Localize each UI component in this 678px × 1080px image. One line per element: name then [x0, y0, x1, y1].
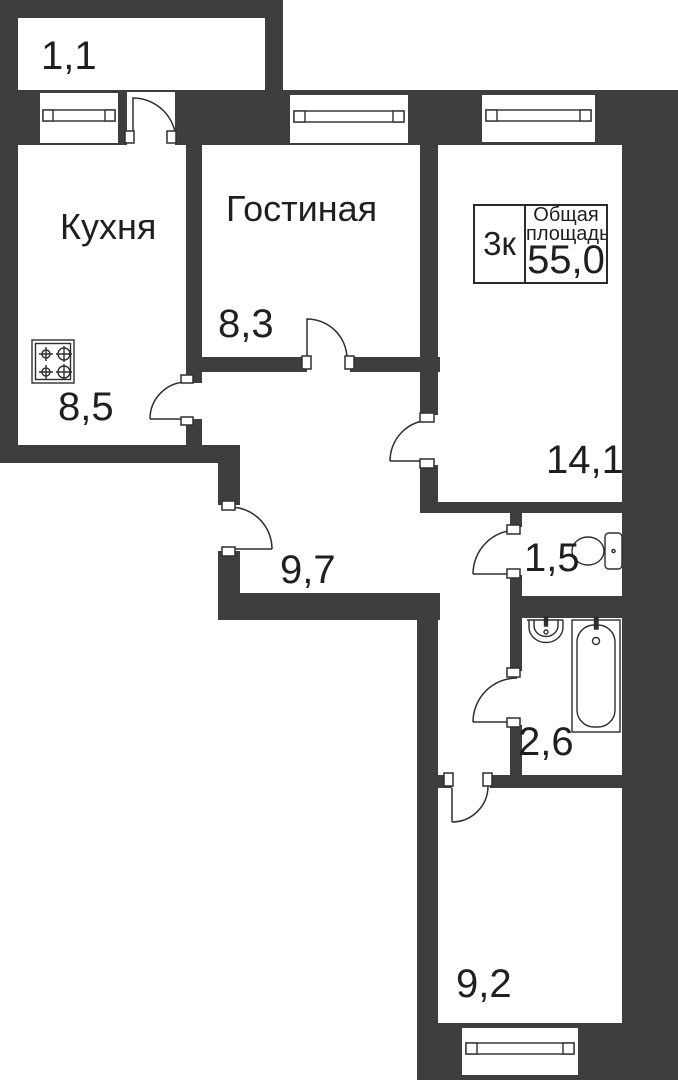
stove-icon: [32, 340, 74, 383]
kitchen-window: [40, 93, 118, 143]
wall-segment: [0, 0, 18, 463]
kitchen-name-label: Кухня: [60, 206, 156, 248]
bathtub-icon: [572, 617, 620, 732]
wall-segment: [420, 145, 438, 415]
kitchen-area-label: 8,5: [58, 385, 114, 430]
wall-segment: [186, 145, 202, 383]
wall-segment: [218, 551, 240, 593]
bedroom1-door-icon: [390, 413, 434, 468]
bathroom-area-label: 2,6: [518, 720, 574, 765]
living-room-door-icon: [302, 319, 354, 369]
bedroom2-window: [462, 1028, 578, 1075]
wall-segment: [265, 0, 283, 92]
living-area-label: 8,3: [218, 302, 274, 347]
wall-segment: [420, 502, 623, 513]
balcony-area-label: 1,1: [41, 34, 97, 79]
floor-plan: 1,1 Кухня 8,5 Гостиная 8,3 14,1 9,7 1,5 …: [0, 0, 678, 1080]
bathroom-door-icon: [473, 668, 520, 727]
wall-segment: [0, 445, 240, 463]
total-area-cell: Общая площадь 55,0: [526, 206, 606, 282]
wall-segment: [218, 463, 240, 505]
wall-segment: [420, 465, 438, 502]
bedroom1-window: [482, 95, 595, 142]
bedroom1-area-label: 14,1: [546, 438, 624, 483]
wall-segment: [510, 596, 678, 618]
wall-segment: [186, 419, 202, 447]
wall-segment: [218, 593, 440, 620]
wall-segment: [510, 618, 522, 671]
wc-area-label: 1,5: [524, 536, 580, 581]
living-room-window: [290, 95, 408, 143]
wall-segment: [438, 775, 452, 788]
wc-door-icon: [473, 525, 520, 578]
wall-segment: [510, 513, 522, 527]
total-area-value: 55,0: [526, 242, 606, 279]
living-name-label: Гостиная: [226, 188, 377, 230]
wall-segment: [0, 0, 283, 18]
info-box: 3к Общая площадь 55,0: [473, 204, 608, 284]
sink-icon: [527, 617, 563, 642]
wall-segment: [510, 575, 522, 596]
wall-segment: [198, 357, 307, 372]
wall-segment: [417, 593, 438, 1080]
entrance-door-icon: [222, 501, 272, 556]
wall-segment: [490, 775, 678, 788]
bedroom2-area-label: 9,2: [456, 962, 512, 1007]
hall-area-label: 9,7: [280, 548, 336, 593]
rooms-count: 3к: [475, 206, 526, 282]
balcony-door-opening: [127, 92, 175, 145]
